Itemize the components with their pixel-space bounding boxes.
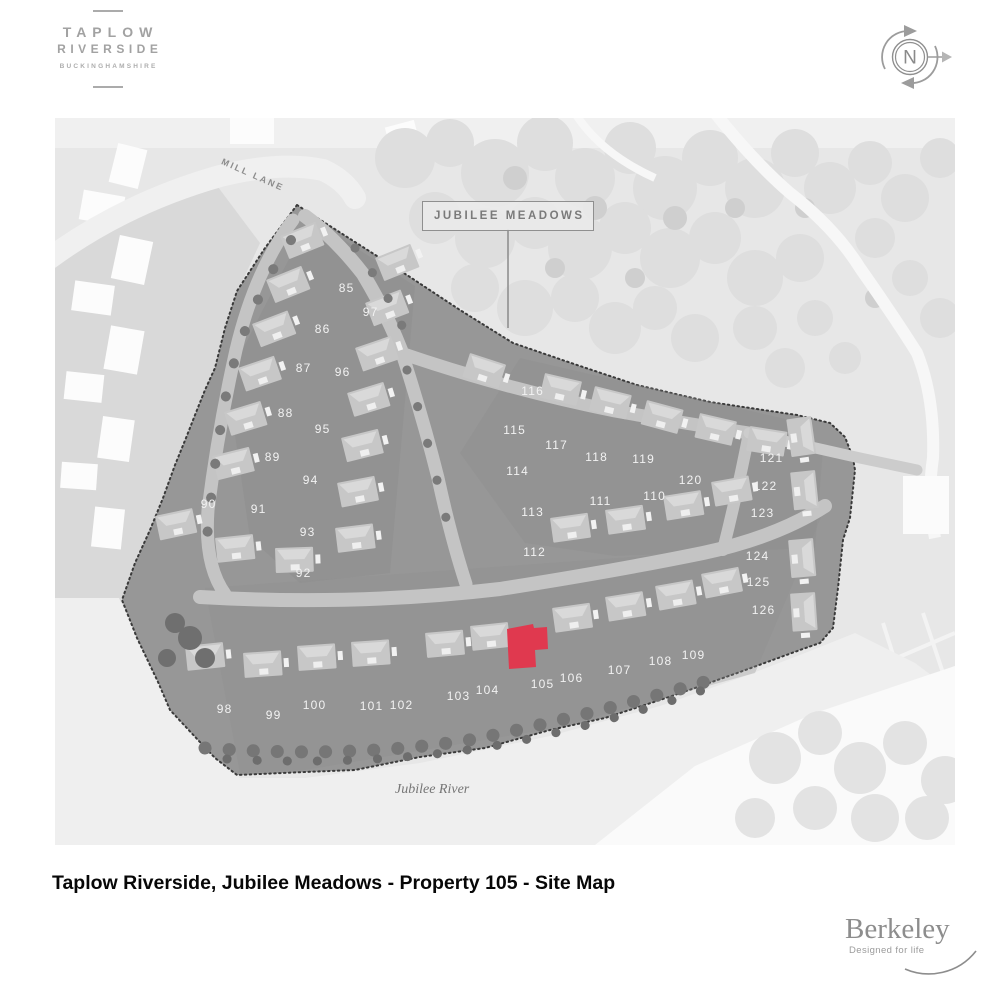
area-label: JUBILEE MEADOWS	[431, 210, 584, 222]
plot-label-116: 116	[520, 384, 544, 398]
plot-label-98: 98	[216, 702, 233, 716]
plot-label-97: 97	[362, 305, 379, 319]
plot-label-101: 101	[359, 699, 384, 713]
berkeley-name: Berkeley	[845, 915, 985, 944]
plot-label-91: 91	[250, 502, 267, 516]
plot-label-113: 113	[520, 505, 544, 519]
plot-label-87: 87	[295, 361, 312, 375]
plot-label-94: 94	[302, 473, 319, 487]
plot-label-107: 107	[607, 663, 632, 677]
plot-label-92: 92	[295, 566, 312, 580]
brand-rule-top	[93, 10, 123, 12]
plot-label-88: 88	[277, 406, 294, 420]
plot-label-95: 95	[314, 422, 331, 436]
plot-label-105: 105	[530, 677, 555, 691]
river-label: Jubilee River	[395, 782, 469, 798]
plot-label-120: 120	[678, 473, 703, 487]
brand-region: BUCKINGHAMSHIRE	[40, 63, 175, 70]
plot-label-90: 90	[200, 497, 217, 511]
brand-title: TAPLOW	[40, 24, 175, 40]
plot-label-126: 126	[751, 603, 776, 617]
plot-label-96: 96	[334, 365, 351, 379]
brand-rule-bottom	[93, 86, 123, 88]
plot-label-119: 119	[631, 452, 655, 466]
plot-label-104: 104	[475, 683, 500, 697]
plot-label-125: 125	[746, 575, 771, 589]
plot-label-111: 111	[588, 494, 611, 508]
area-label-box: JUBILEE MEADOWS	[422, 201, 594, 231]
berkeley-swoosh-icon	[903, 949, 981, 977]
plot-label-115: 115	[502, 423, 526, 437]
site-map: JUBILEE MEADOWS MILL LANE Jubilee River …	[55, 118, 955, 845]
brand-subtitle: RIVERSIDE	[40, 42, 175, 56]
plot-label-99: 99	[265, 708, 282, 722]
plot-label-93: 93	[299, 525, 316, 539]
plot-label-110: 110	[642, 489, 666, 503]
plot-label-123: 123	[750, 506, 775, 520]
compass-label: N	[903, 48, 917, 69]
plot-label-109: 109	[681, 648, 706, 662]
plot-label-86: 86	[314, 322, 331, 336]
plot-label-121: 121	[759, 451, 784, 465]
plot-label-100: 100	[302, 698, 327, 712]
plot-label-108: 108	[648, 654, 673, 668]
plot-label-112: 112	[522, 545, 546, 559]
plot-label-117: 117	[544, 438, 568, 452]
page-title: Taplow Riverside, Jubilee Meadows - Prop…	[52, 872, 615, 895]
brand-logo: TAPLOW RIVERSIDE BUCKINGHAMSHIRE	[40, 8, 175, 98]
plot-label-106: 106	[559, 671, 584, 685]
plot-label-89: 89	[264, 450, 281, 464]
plot-label-103: 103	[446, 689, 471, 703]
plot-label-102: 102	[389, 698, 414, 712]
plot-label-124: 124	[745, 549, 770, 563]
compass-icon: N	[858, 8, 968, 113]
plot-label-85: 85	[338, 281, 355, 295]
plot-label-122: 122	[753, 479, 778, 493]
plot-label-114: 114	[505, 464, 529, 478]
berkeley-logo: Berkeley Designed for life	[845, 915, 985, 975]
compass-east-arrow	[928, 52, 952, 63]
plot-label-118: 118	[584, 450, 608, 464]
